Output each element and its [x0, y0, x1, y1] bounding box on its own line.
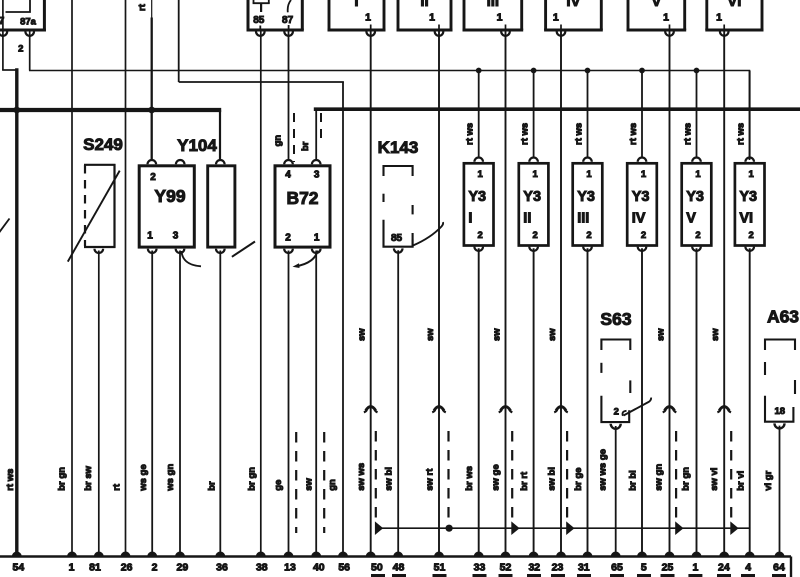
svg-text:1: 1 [497, 11, 503, 23]
svg-text:rt ws: rt ws [573, 123, 584, 145]
svg-text:Y3: Y3 [739, 189, 757, 205]
svg-text:4: 4 [745, 561, 751, 573]
svg-text:1: 1 [478, 169, 484, 180]
svg-text:Y3: Y3 [523, 189, 541, 205]
svg-text:br gn: br gn [56, 467, 67, 491]
svg-text:sw: sw [547, 328, 558, 341]
svg-text:br ws: br ws [464, 466, 475, 491]
svg-text:br ge: br ge [573, 468, 584, 491]
svg-text:br sw: br sw [83, 465, 94, 490]
svg-text:B72: B72 [286, 188, 318, 208]
svg-text:54: 54 [13, 561, 25, 573]
svg-text:vi gr: vi gr [763, 470, 774, 490]
svg-text:III: III [487, 0, 500, 10]
svg-text:rt ws: rt ws [628, 123, 639, 145]
svg-text:sw: sw [425, 328, 436, 341]
svg-text:rt ws: rt ws [736, 123, 747, 145]
svg-text:sw gn: sw gn [653, 464, 664, 491]
svg-text:1: 1 [749, 169, 755, 180]
svg-text:2: 2 [749, 230, 754, 241]
svg-text:1: 1 [365, 11, 371, 23]
svg-text:sw: sw [656, 328, 667, 341]
svg-text:Y99: Y99 [154, 186, 185, 206]
svg-text:1: 1 [532, 169, 538, 180]
svg-text:I: I [354, 0, 358, 10]
svg-text:1: 1 [716, 11, 722, 23]
svg-text:2: 2 [150, 172, 156, 183]
svg-text:2: 2 [18, 44, 23, 55]
svg-text:1: 1 [692, 561, 698, 573]
svg-text:1: 1 [429, 11, 435, 23]
svg-text:sw: sw [357, 328, 368, 341]
svg-text:18: 18 [775, 406, 786, 417]
svg-text:ws gn: ws gn [165, 464, 176, 492]
svg-text:51: 51 [434, 561, 446, 573]
svg-text:87a: 87a [20, 17, 37, 28]
svg-text:2: 2 [532, 230, 537, 241]
svg-text:sw vi: sw vi [709, 468, 720, 491]
svg-text:sw bl: sw bl [384, 467, 395, 491]
svg-text:Y3: Y3 [468, 189, 486, 205]
svg-text:br: br [207, 481, 218, 491]
svg-text:br vi: br vi [736, 471, 747, 491]
svg-text:I: I [468, 211, 472, 227]
svg-text:sw bl: sw bl [547, 467, 558, 491]
svg-text:rt: rt [111, 483, 122, 491]
svg-text:1: 1 [553, 11, 559, 23]
svg-text:56: 56 [338, 561, 350, 573]
svg-text:1: 1 [69, 561, 75, 573]
svg-text:rt ws: rt ws [682, 123, 693, 145]
svg-text:2: 2 [641, 230, 646, 241]
svg-text:V: V [686, 211, 696, 227]
svg-text:36: 36 [216, 561, 228, 573]
svg-text:sw ge: sw ge [491, 464, 502, 490]
svg-text:1: 1 [586, 169, 592, 180]
svg-text:29: 29 [177, 561, 189, 573]
svg-text:rt ws: rt ws [519, 123, 530, 145]
svg-text:sw ws: sw ws [356, 463, 367, 491]
svg-text:40: 40 [313, 561, 325, 573]
svg-text:br: br [300, 141, 311, 151]
svg-text:sw ws ge: sw ws ge [598, 449, 609, 491]
svg-text:III: III [577, 211, 589, 227]
svg-text:sw rt: sw rt [425, 468, 436, 491]
svg-text:64: 64 [773, 561, 785, 573]
svg-text:II: II [523, 211, 531, 227]
svg-text:V: V [651, 0, 661, 10]
svg-text:sw: sw [710, 328, 721, 341]
svg-text:1: 1 [641, 169, 647, 180]
svg-text:Y104: Y104 [177, 136, 217, 155]
svg-text:2: 2 [586, 230, 591, 241]
svg-text:S249: S249 [83, 135, 123, 154]
svg-text:br gn: br gn [680, 467, 691, 491]
svg-text:sw: sw [304, 478, 315, 491]
svg-text:VI: VI [727, 0, 741, 10]
svg-text:1: 1 [663, 11, 669, 23]
svg-text:VI: VI [739, 211, 753, 227]
svg-text:Y3: Y3 [686, 189, 704, 205]
svg-text:K143: K143 [378, 138, 419, 157]
svg-text:26: 26 [121, 561, 133, 573]
svg-text:IV: IV [632, 211, 646, 227]
svg-text:IV: IV [566, 0, 580, 10]
svg-text:52: 52 [500, 561, 512, 573]
svg-text:Y3: Y3 [577, 189, 595, 205]
svg-text:81: 81 [89, 561, 101, 573]
svg-text:II: II [420, 0, 428, 10]
svg-text:1: 1 [314, 233, 320, 244]
svg-text:sw: sw [492, 328, 503, 341]
svg-text:33: 33 [474, 561, 486, 573]
svg-text:24: 24 [718, 561, 730, 573]
svg-text:ws ge: ws ge [138, 464, 149, 491]
svg-text:Y3: Y3 [632, 189, 650, 205]
svg-text:ge: ge [273, 480, 284, 491]
svg-text:1: 1 [147, 231, 153, 242]
svg-text:2: 2 [478, 230, 483, 241]
svg-text:25: 25 [662, 561, 674, 573]
svg-text:rt ws: rt ws [465, 123, 476, 145]
svg-text:50: 50 [371, 561, 383, 573]
svg-text:31: 31 [578, 561, 590, 573]
svg-text:38: 38 [256, 561, 268, 573]
svg-text:2: 2 [614, 407, 619, 418]
svg-text:13: 13 [284, 561, 296, 573]
svg-text:br bl: br bl [628, 470, 639, 491]
svg-text:23: 23 [552, 561, 564, 573]
svg-text:2: 2 [695, 230, 700, 241]
svg-text:87: 87 [0, 16, 5, 27]
svg-text:S63: S63 [600, 309, 631, 329]
svg-text:A63: A63 [767, 307, 799, 327]
svg-text:32: 32 [528, 561, 540, 573]
svg-text:65: 65 [611, 561, 623, 573]
svg-text:2: 2 [152, 561, 158, 573]
svg-text:rt ws: rt ws [5, 469, 16, 491]
svg-text:85: 85 [391, 233, 403, 244]
svg-text:br rt: br rt [519, 471, 530, 491]
svg-text:3: 3 [314, 170, 320, 181]
svg-text:5: 5 [641, 561, 647, 573]
svg-text:rt: rt [137, 3, 148, 11]
svg-text:br gn: br gn [247, 467, 258, 491]
svg-text:2: 2 [285, 233, 291, 244]
svg-text:gn: gn [327, 479, 338, 491]
svg-text:48: 48 [393, 561, 405, 573]
svg-text:1: 1 [695, 169, 701, 180]
svg-text:3: 3 [173, 231, 179, 242]
svg-text:87: 87 [282, 15, 294, 26]
svg-text:4: 4 [285, 170, 291, 181]
svg-text:gn: gn [273, 135, 284, 147]
svg-text:85: 85 [253, 15, 265, 26]
